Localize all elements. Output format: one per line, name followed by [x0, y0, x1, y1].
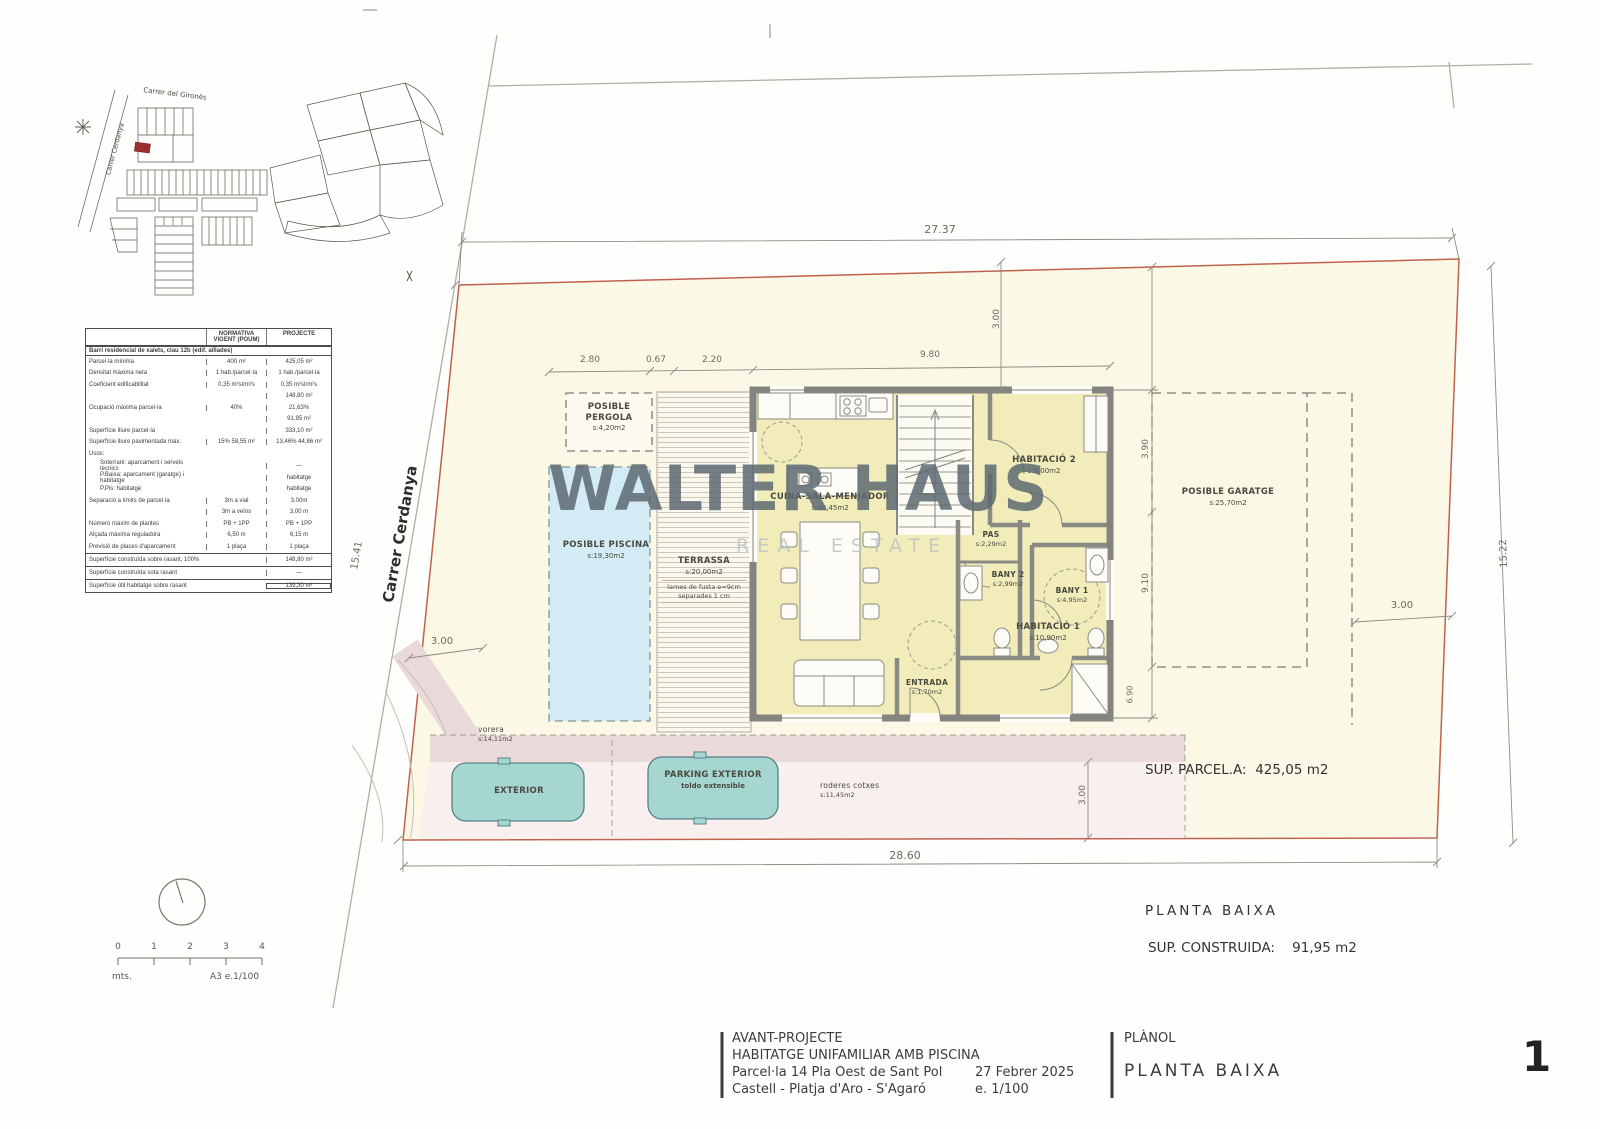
room-label-hab1: HABITACIÓ 1s:10,90m2 — [998, 622, 1098, 642]
dim-bottom-setback: 3.00 — [1078, 770, 1088, 820]
scale-units-label: mts. — [112, 972, 132, 982]
table-row: 91,95 m² — [86, 414, 331, 426]
sofa — [794, 660, 884, 706]
table-row: Superfície lliure parcel·la333,10 m² — [86, 425, 331, 437]
table-row: Usos: — [86, 448, 331, 460]
dim-top-width: 27.37 — [880, 223, 1000, 236]
site-location-map — [60, 75, 460, 310]
scale-sheet-label: A3 e.1/100 — [210, 972, 259, 982]
dim-c: 2.20 — [682, 355, 742, 365]
table-footer-row: Superfície construïda sobre rasant, 100%… — [86, 553, 331, 566]
table-row: P.Pis: habitatgehabitatge — [86, 484, 331, 496]
scale-tick-3: 3 — [220, 942, 232, 952]
plan-title: PLANTA BAIXA — [1145, 903, 1278, 919]
parcel-area-summary: SUP. PARCEL.A: 425,05 m2 — [1145, 762, 1328, 778]
dim-g1: 3.90 — [1141, 424, 1151, 474]
titleblock-planol: PLÀNOL PLANTA BAIXA — [1124, 1030, 1282, 1081]
dim-bottom-width: 28.60 — [845, 849, 965, 862]
car-label-parking: PARKING EXTERIOR toldo extensible — [655, 770, 771, 790]
highlighted-parcel — [134, 142, 150, 153]
project-name: HABITATGE UNIFAMILIAR AMB PISCINA — [732, 1047, 980, 1064]
scale-tick-1: 1 — [148, 942, 160, 952]
room-label-pergola: POSIBLE PERGOLAs:4,20m2 — [565, 402, 653, 433]
dim-top-setback: 3.00 — [992, 294, 1002, 344]
dim-g3: 6.90 — [1126, 673, 1135, 717]
watermark-subtitle: REAL ESTATE — [736, 535, 1049, 557]
scale-tick-2: 2 — [184, 942, 196, 952]
dim-b: 0.67 — [632, 355, 680, 365]
table-row: P.Baixa: aparcament (garatge) i habitatg… — [86, 472, 331, 484]
normativa-table: NORMATIVAVIGENT (POUM) PROJECTE Barri re… — [85, 328, 332, 593]
table-row: Superfície lliure pavimentada màx.15% 58… — [86, 437, 331, 449]
scale-bar — [118, 958, 262, 965]
planol-value: PLANTA BAIXA — [1124, 1061, 1282, 1081]
table-row: Alçada màxima reguladora6,50 m6,15 m — [86, 530, 331, 542]
room-label-terrassa: TERRASSAs:20,00m2 lames de fusta e=9cmse… — [662, 556, 746, 603]
scale-tick-4: 4 — [256, 942, 268, 952]
table-row: Coeficient edificabilitat0,35 m²st/m²s0,… — [86, 379, 331, 391]
watermark-title: WALTER HAUS — [548, 452, 1049, 525]
kitchen-counter — [758, 393, 893, 419]
table-footer-row: Superfície útil habitatge sobre rasant13… — [86, 579, 331, 592]
titleblock-date-scale: 27 Febrer 2025 e. 1/100 — [975, 1064, 1074, 1098]
scale-tick-0: 0 — [112, 942, 124, 952]
table-footer-row: Superfície construïda sota rasant— — [86, 566, 331, 579]
dim-d: 9.80 — [885, 350, 975, 360]
dim-left-setback: 3.00 — [412, 636, 472, 647]
dim-g2: 9.10 — [1141, 558, 1151, 608]
table-row: Separació a límits de parcel·la3m a vial… — [86, 495, 331, 507]
room-label-bany1: BANY 1s:4,95m2 — [1040, 586, 1104, 605]
table-row: Número màxim de plantesPB + 1PPPB + 1PP — [86, 518, 331, 530]
table-row: Soterrani: aparcament i serveis tècnics— — [86, 460, 331, 472]
car-label-exterior: EXTERIOR — [460, 786, 578, 797]
table-row: 3m a veïns3,00 m — [86, 507, 331, 519]
table-row: Densitat màxima neta1 hab./parcel·la1 ha… — [86, 368, 331, 380]
sheet-number: 1 — [1522, 1032, 1551, 1081]
project-type: AVANT-PROJECTE — [732, 1030, 980, 1047]
table-row: Ocupació màxima parcel·la40%21,63% — [86, 402, 331, 414]
project-parcel: Parcel·la 14 Pla Oest de Sant Pol — [732, 1064, 980, 1081]
dim-a: 2.80 — [560, 355, 620, 365]
project-location: Castell - Platja d'Aro - S'Agaró — [732, 1081, 980, 1098]
table-section-title: Barri residencial de xalets, clau 12b (e… — [86, 346, 331, 356]
compass-star-icon — [75, 119, 91, 135]
table-row: Previsió de places d'aparcament1 plaça1 … — [86, 541, 331, 553]
plan-sheet: Carrer del Gironès Carrer Cerdanya NORMA… — [0, 0, 1600, 1129]
north-compass — [159, 879, 205, 925]
room-label-bany2: BANY 2s:2,99m2 — [978, 570, 1038, 589]
titleblock-project: AVANT-PROJECTE HABITATGE UNIFAMILIAR AMB… — [732, 1030, 980, 1098]
watermark: WALTER HAUS REAL ESTATE — [548, 452, 1049, 557]
table-header: NORMATIVAVIGENT (POUM) PROJECTE — [86, 329, 331, 346]
project-scale: e. 1/100 — [975, 1081, 1074, 1098]
label-roderes: roderes cotxes s:11,45m2 — [820, 781, 910, 800]
planol-label: PLÀNOL — [1124, 1030, 1282, 1047]
room-label-entrada: ENTRADAs:1,70m2 — [898, 678, 956, 697]
built-area-summary: SUP. CONSTRUIDA: 91,95 m2 — [1148, 940, 1357, 956]
table-row: 148,80 m² — [86, 391, 331, 403]
dim-right-setback: 3.00 — [1372, 600, 1432, 611]
room-label-garatge: POSIBLE GARATGEs:25,70m2 — [1168, 487, 1288, 507]
project-date: 27 Febrer 2025 — [975, 1064, 1074, 1081]
room-label-vorera: vorera s:14,11m2 — [478, 725, 548, 744]
crop-marks — [363, 10, 770, 38]
table-row: Parcel·la mínima400 m²425,05 m² — [86, 356, 331, 368]
